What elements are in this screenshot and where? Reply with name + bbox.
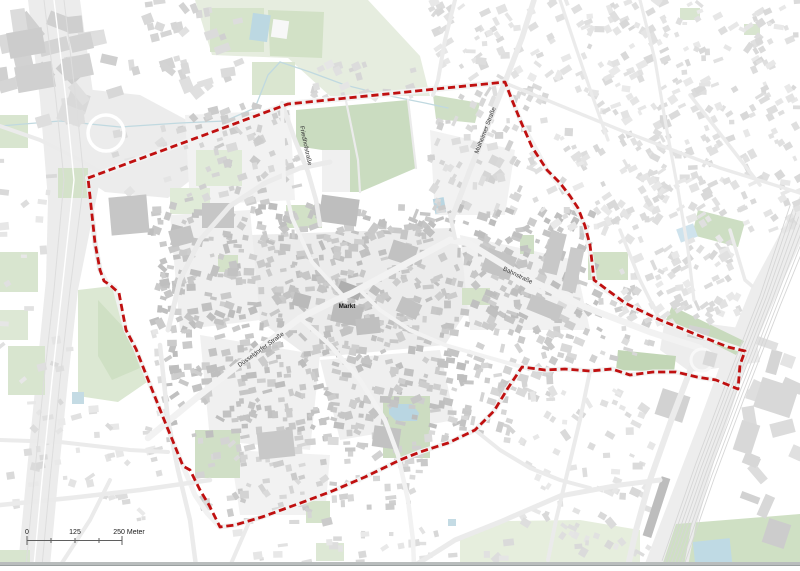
svg-text:125: 125 (69, 529, 81, 536)
svg-text:Markt: Markt (339, 303, 357, 310)
svg-text:250 Meter: 250 Meter (113, 529, 145, 536)
svg-text:0: 0 (25, 529, 29, 536)
